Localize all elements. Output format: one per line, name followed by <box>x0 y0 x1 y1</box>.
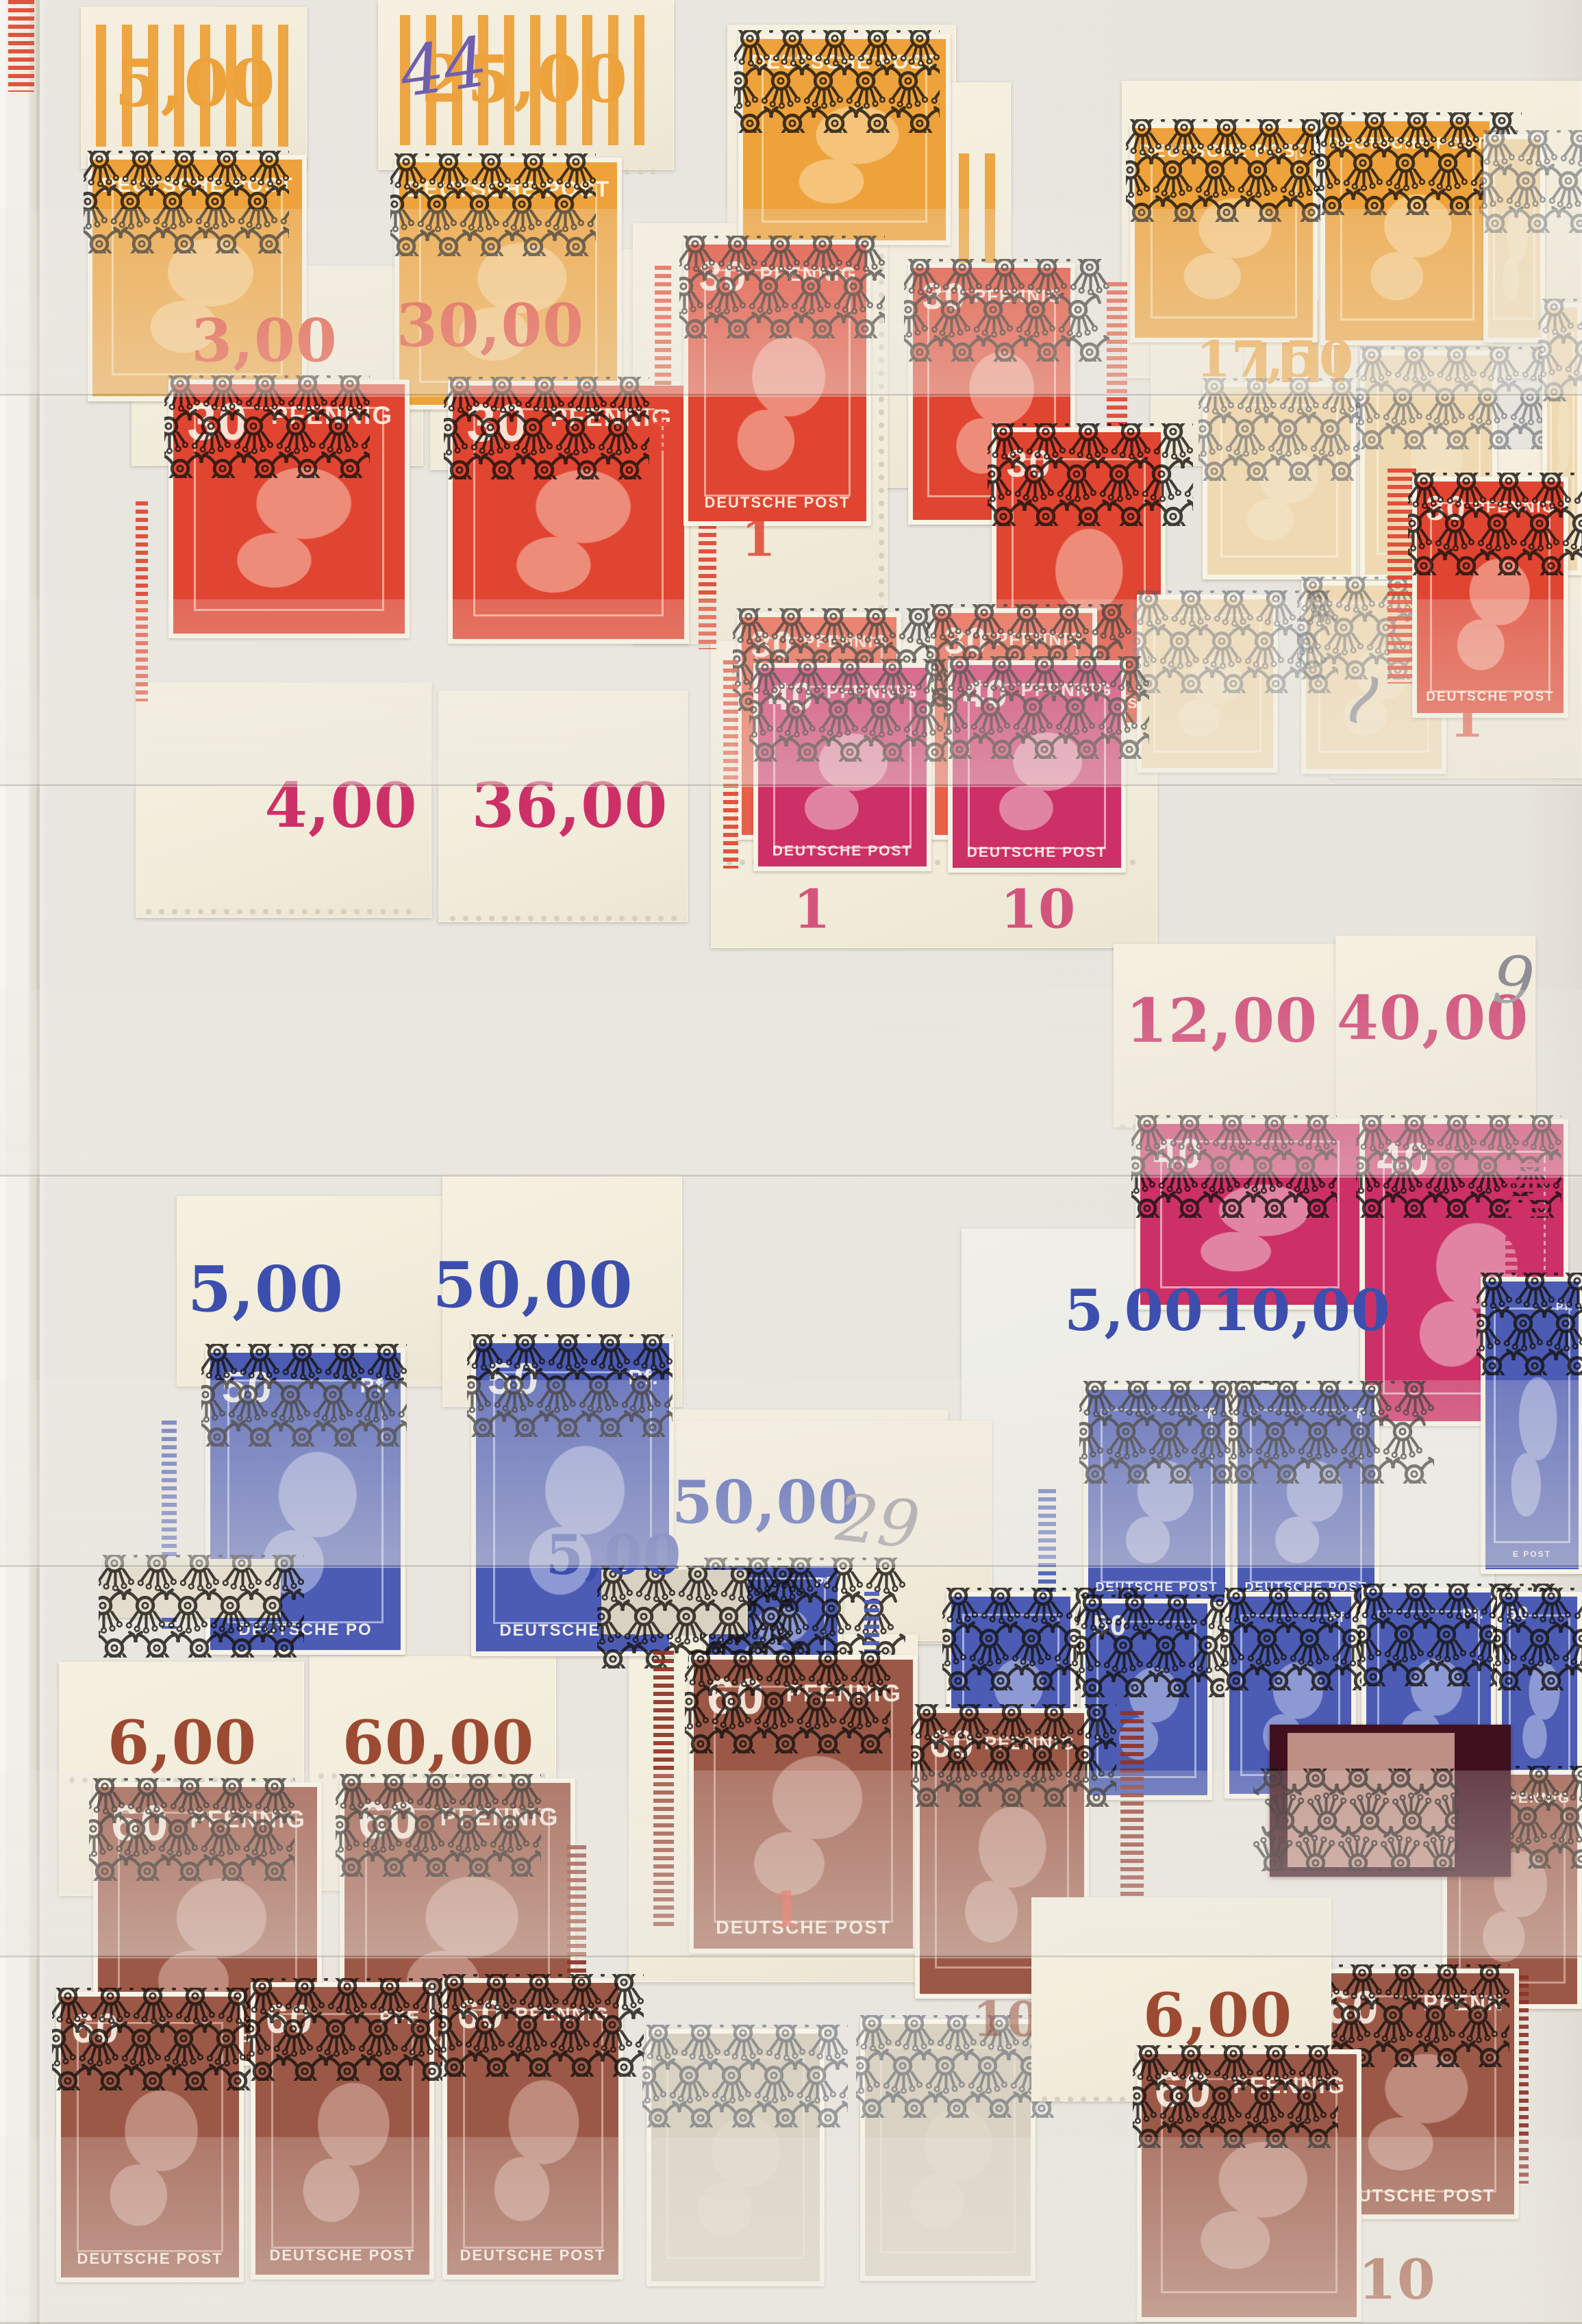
glassine-pocket-strip <box>0 2137 1582 2324</box>
sheet-number: 10 <box>972 1991 1040 2048</box>
stamp-paleOrange <box>1203 382 1356 579</box>
stamp-blue: 50 <box>1081 1599 1212 1800</box>
stamp-album-page: DEUTSCHE POSTDEUTSCHE POSTDEUTSCHE POSTD… <box>0 0 1582 2324</box>
stamp-perforated-edge <box>1081 1599 1212 1800</box>
sheet-number: 10 <box>1001 879 1077 941</box>
margin-value-label: 5,00 <box>188 1252 344 1326</box>
margin-value-label: 6,00 <box>108 1707 257 1778</box>
margin-value-label: 50,00 <box>432 1248 633 1322</box>
sheet-number: 1 <box>793 879 831 941</box>
glassine-pocket-strip <box>0 1380 1582 1567</box>
margin-value-label: 5,00 <box>114 46 275 122</box>
margin-value-label: 10,00 <box>1211 1278 1391 1344</box>
margin-value-label: 60,00 <box>342 1707 535 1778</box>
sheet-number: 1 <box>741 510 776 568</box>
stamp-perforated-edge <box>1203 382 1356 579</box>
margin-value-label: 5,00 <box>1064 1278 1204 1344</box>
color-ladder-bar <box>864 1592 879 1658</box>
glassine-pocket-strip <box>0 1771 1582 1958</box>
color-ladder-bar <box>8 0 34 92</box>
glassine-pocket-strip <box>0 990 1582 1177</box>
glassine-pocket-strip <box>0 209 1582 396</box>
margin-value-label: 6,00 <box>1143 1979 1292 2051</box>
overprint-strip <box>103 1559 281 1618</box>
handwriting-annotation: 44 <box>395 21 492 113</box>
glassine-pocket-strip <box>0 599 1582 786</box>
perforation-dots <box>145 908 419 915</box>
perforation-dots <box>449 915 685 922</box>
